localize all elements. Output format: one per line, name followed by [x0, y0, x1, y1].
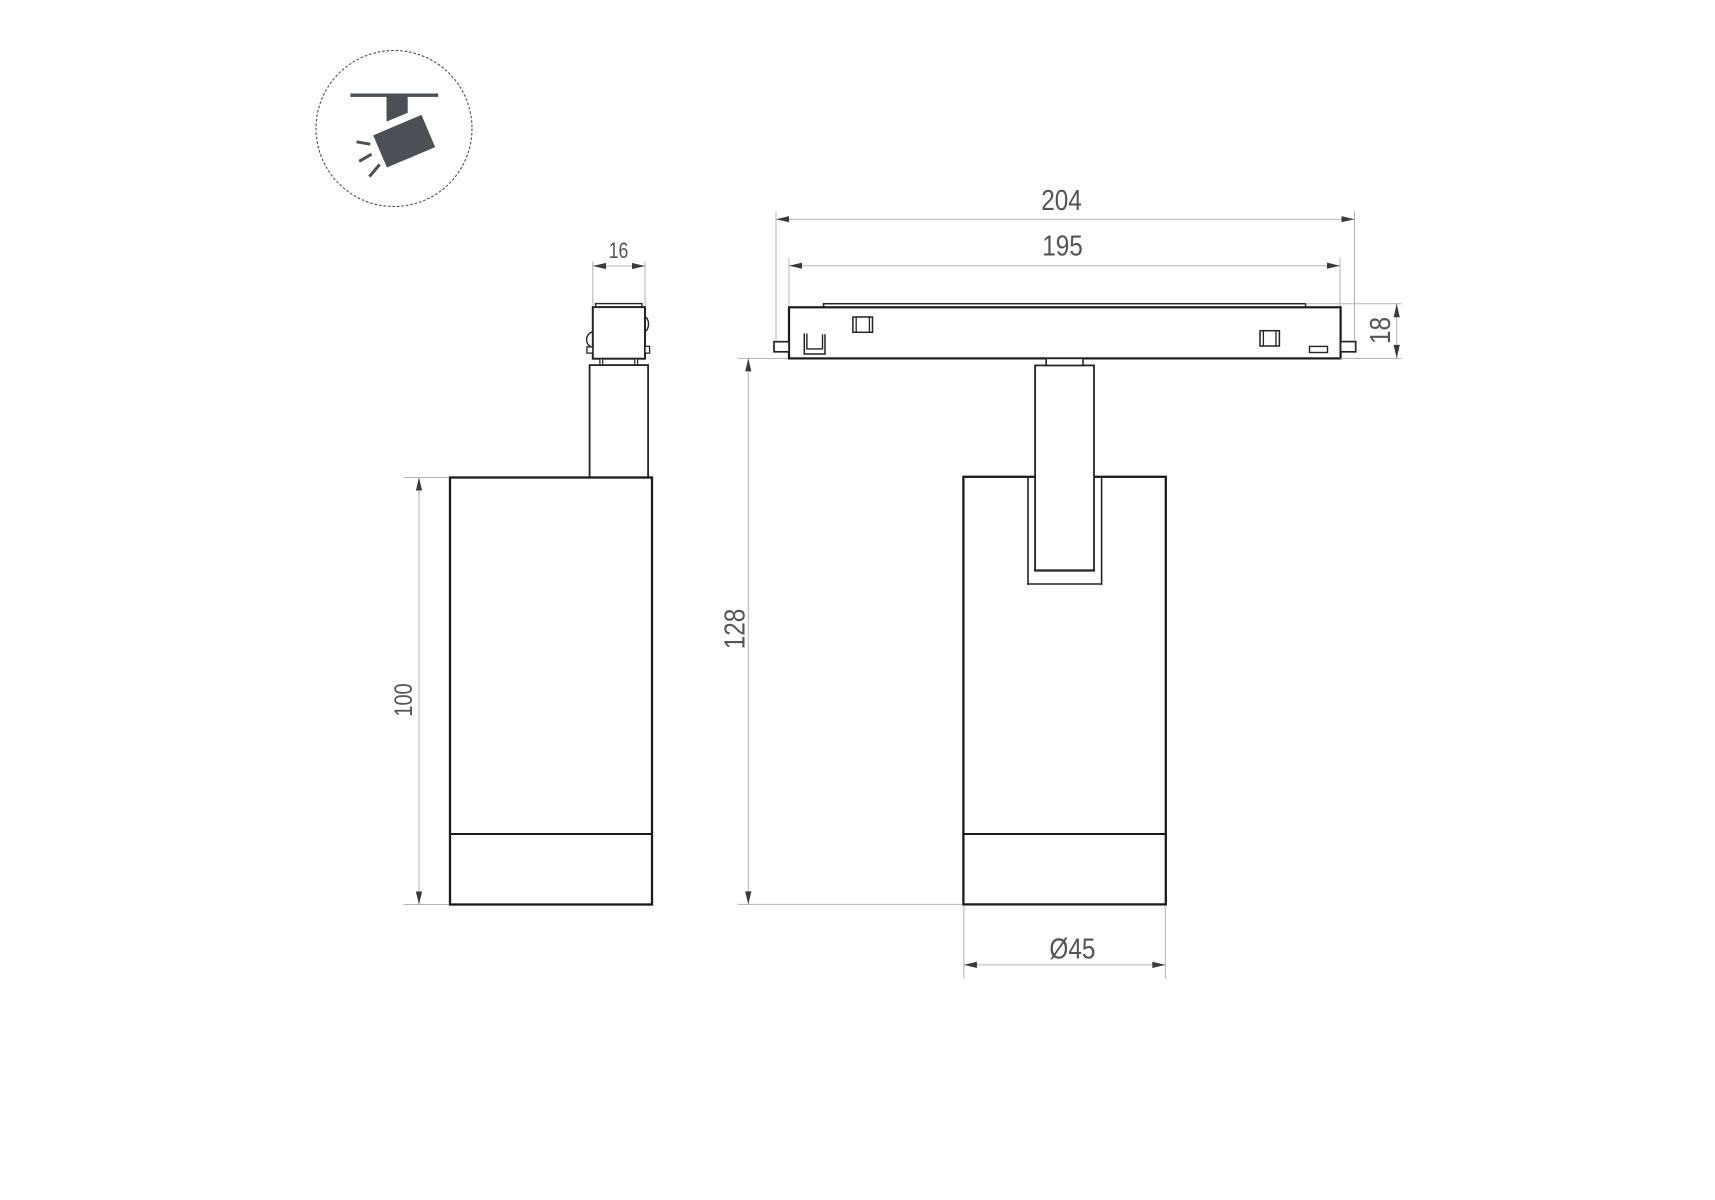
svg-text:Ø45: Ø45 [1049, 933, 1095, 965]
svg-text:195: 195 [1042, 230, 1083, 262]
svg-text:16: 16 [609, 239, 629, 263]
svg-text:204: 204 [1041, 184, 1082, 216]
svg-text:18: 18 [1364, 317, 1396, 344]
svg-text:128: 128 [719, 609, 751, 650]
svg-text:100: 100 [390, 683, 418, 716]
